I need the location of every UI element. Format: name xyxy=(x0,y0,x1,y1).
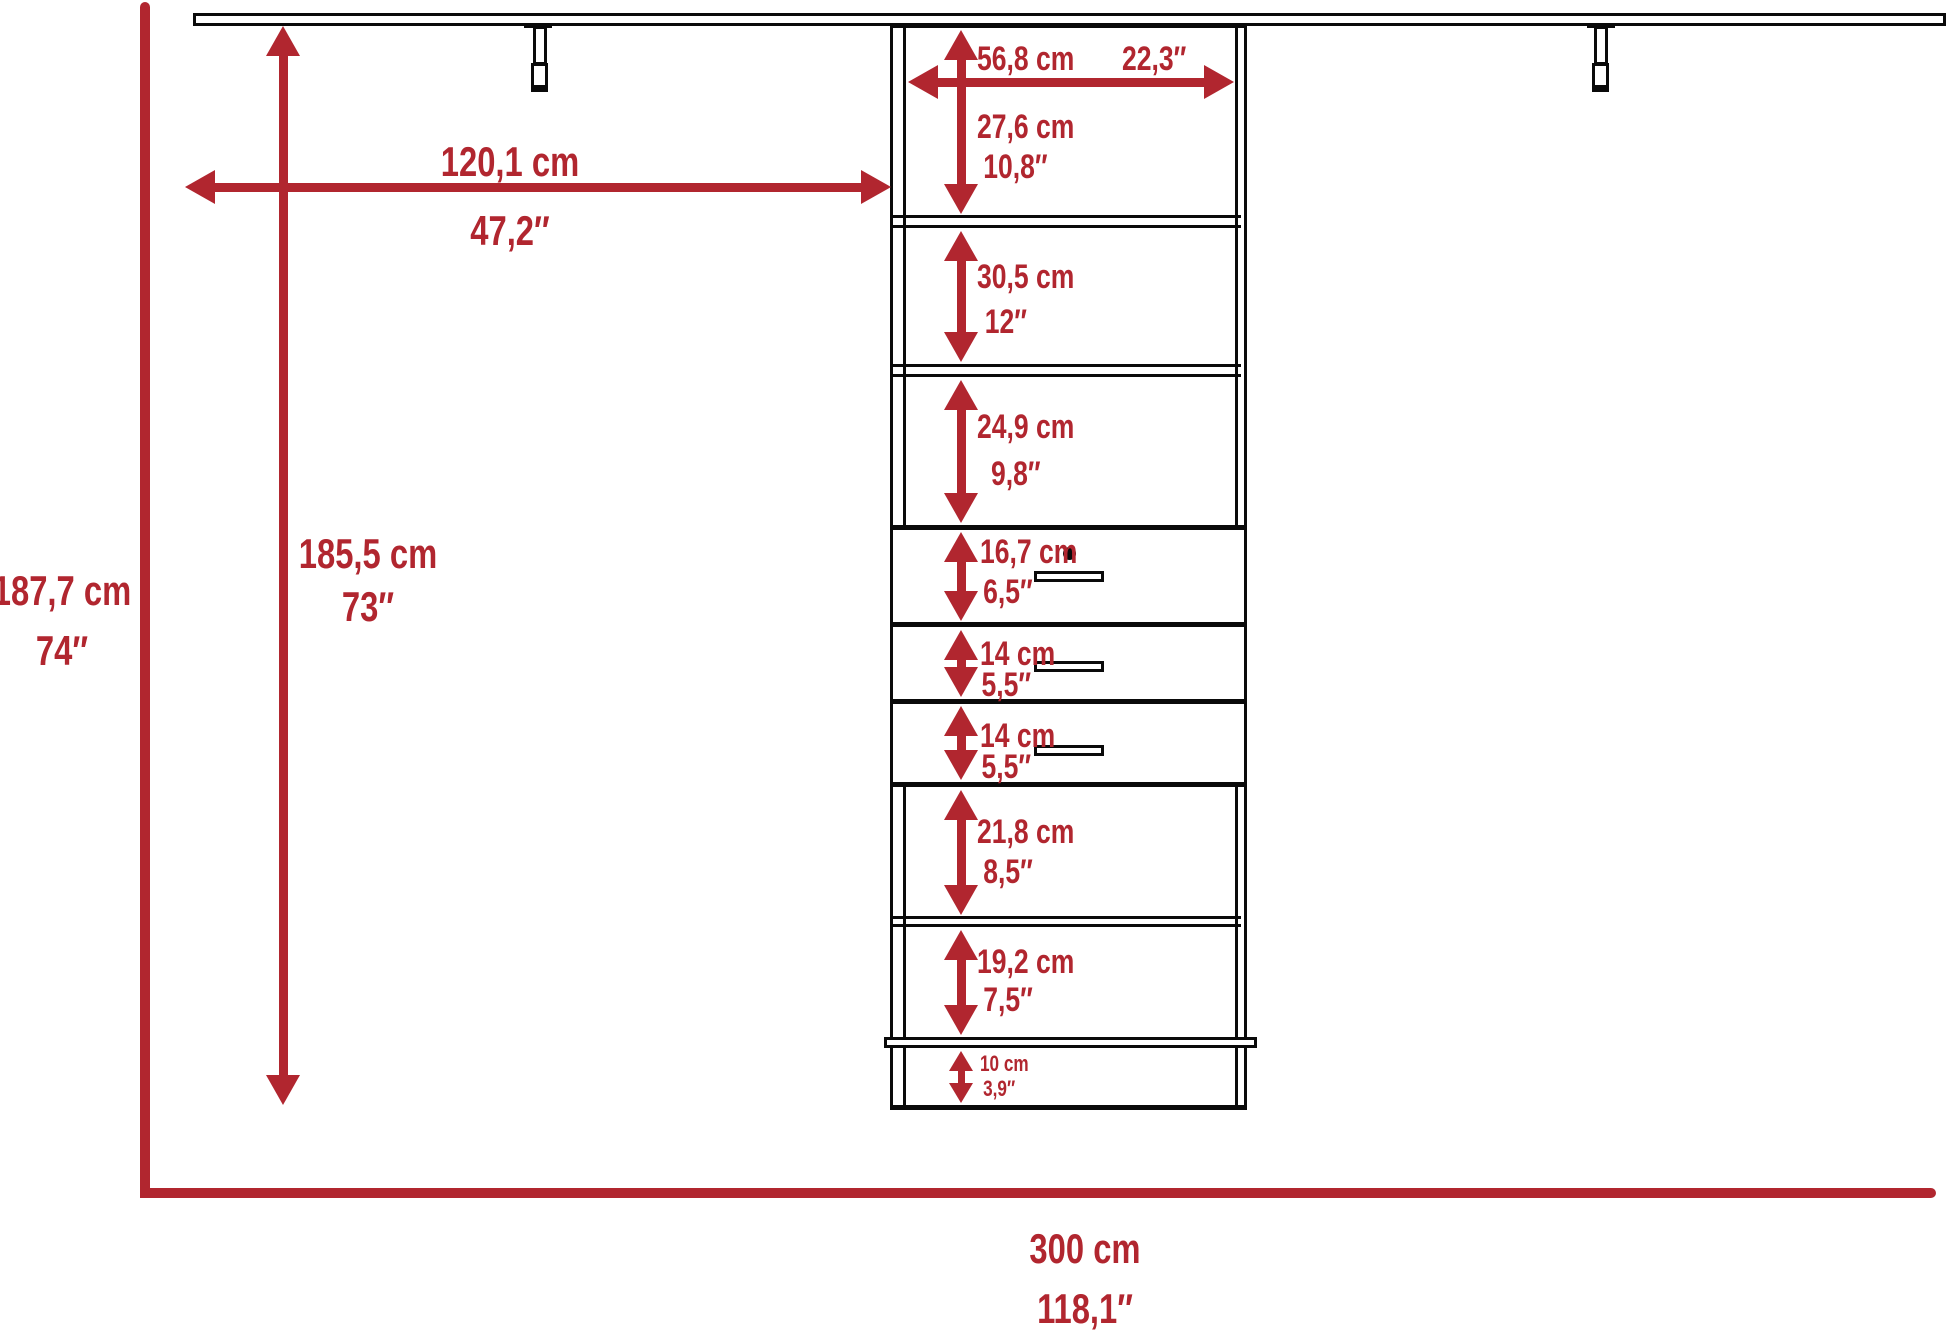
shelf-3-cm: 24,9 cm xyxy=(977,410,1074,444)
arrow-drawer-2 xyxy=(943,630,979,697)
drawer-2-in: 5,5″ xyxy=(980,668,1055,702)
drawer-divider-bottom xyxy=(890,782,1247,787)
shelf-2-cm: 30,5 cm xyxy=(977,260,1074,294)
label-shelf-5: 19,2 cm 7,5″ xyxy=(977,945,1074,1017)
drawer-divider-1 xyxy=(890,622,1247,627)
drawer-divider-top xyxy=(890,525,1247,530)
label-shelf-2: 30,5 cm 12″ xyxy=(977,260,1074,339)
shelf-5-cm: 19,2 cm xyxy=(977,945,1074,979)
left-section-width-in: 47,2″ xyxy=(416,210,603,252)
arrow-shelf-3 xyxy=(943,380,979,523)
overall-height-in: 74″ xyxy=(0,630,156,672)
tower-right-panel-inner-upper xyxy=(1235,25,1238,527)
arrow-shelf-1 xyxy=(943,30,979,214)
base-cm: 10 cm xyxy=(980,1053,1029,1075)
total-width-cm: 300 cm xyxy=(991,1228,1178,1270)
label-tower-width-cm: 56,8 cm xyxy=(977,42,1074,76)
interior-height-in: 73″ xyxy=(274,586,461,628)
tower-left-panel-inner-lower xyxy=(903,787,906,1105)
shelf-1-cm: 27,6 cm xyxy=(977,110,1074,144)
label-drawer-2: 14 cm 5,5″ xyxy=(980,637,1055,702)
shelf-board-4-protruding xyxy=(884,1037,1257,1048)
total-width-in: 118,1″ xyxy=(991,1288,1178,1330)
overall-height-cm: 187,7 cm xyxy=(0,570,156,612)
tower-left-panel-inner-upper xyxy=(903,25,906,527)
interior-height-cm: 185,5 cm xyxy=(274,533,461,575)
shelf-board-3 xyxy=(893,916,1241,927)
right-rod-bracket-hook xyxy=(1592,63,1609,92)
tower-right-panel-inner-lower xyxy=(1235,787,1238,1105)
arrow-shelf-4 xyxy=(943,790,979,915)
right-rod-bracket-stem xyxy=(1594,26,1608,65)
shelf-3-in: 9,8″ xyxy=(977,457,1074,491)
closet-dimension-diagram: 187,7 cm 74″ 185,5 cm 73″ 120,1 cm 47,2″… xyxy=(0,0,1946,1339)
arrow-shelf-5 xyxy=(943,930,979,1035)
left-rod-bracket-hook xyxy=(531,63,548,92)
label-left-section-width: 120,1 cm 47,2″ xyxy=(416,141,603,252)
arrow-drawer-3 xyxy=(943,706,979,780)
label-shelf-4: 21,8 cm 8,5″ xyxy=(977,815,1074,889)
label-interior-height: 185,5 cm 73″ xyxy=(274,533,461,628)
label-overall-height: 187,7 cm 74″ xyxy=(0,570,156,672)
arrow-drawer-1 xyxy=(943,532,979,621)
label-total-width: 300 cm 118,1″ xyxy=(991,1228,1178,1330)
shelf-board-2 xyxy=(893,364,1241,377)
overall-width-line xyxy=(140,1188,1936,1198)
label-tower-width-in: 22,3″ xyxy=(1122,42,1186,76)
left-section-width-cm: 120,1 cm xyxy=(416,141,603,183)
drawer-3-in: 5,5″ xyxy=(980,750,1055,784)
label-shelf-1: 27,6 cm 10,8″ xyxy=(977,110,1074,184)
label-shelf-3: 24,9 cm 9,8″ xyxy=(977,410,1074,491)
drawer-1-in: 6,5″ xyxy=(980,575,1077,609)
label-drawer-1: 16,7 cm 6,5″ xyxy=(980,535,1077,609)
drawer-1-cm: 16,7 cm xyxy=(980,535,1077,569)
arrow-shelf-2 xyxy=(943,231,979,362)
left-rod-bracket-stem xyxy=(533,26,547,65)
shelf-board-1 xyxy=(893,215,1241,228)
shelf-1-in: 10,8″ xyxy=(977,150,1074,184)
label-base: 10 cm 3,9″ xyxy=(980,1053,1029,1100)
shelf-4-in: 8,5″ xyxy=(977,855,1074,889)
arrow-base xyxy=(948,1051,974,1103)
shelf-5-in: 7,5″ xyxy=(977,983,1074,1017)
drawer-divider-2 xyxy=(890,699,1247,704)
label-drawer-3: 14 cm 5,5″ xyxy=(980,719,1055,784)
base-in: 3,9″ xyxy=(980,1078,1029,1100)
shelf-2-in: 12″ xyxy=(977,305,1074,339)
shelf-4-cm: 21,8 cm xyxy=(977,815,1074,849)
